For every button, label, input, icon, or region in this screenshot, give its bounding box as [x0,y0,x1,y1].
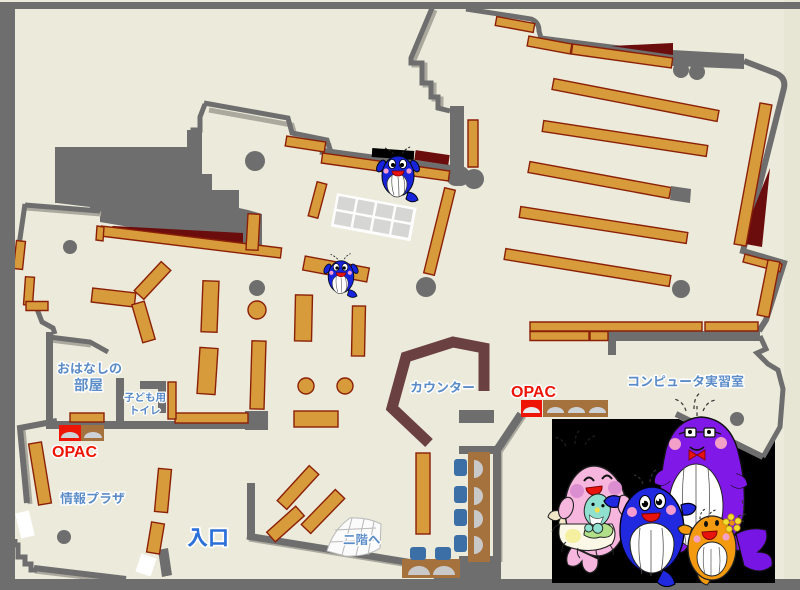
svg-text:OPAC: OPAC [52,444,97,461]
svg-text:OPAC: OPAC [511,384,556,401]
